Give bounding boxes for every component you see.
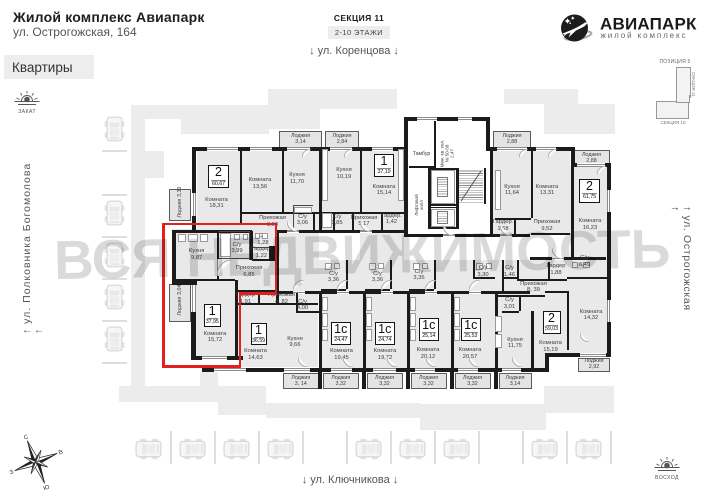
svg-text:С: С bbox=[23, 434, 30, 441]
svg-text:Ю: Ю bbox=[43, 485, 51, 490]
svg-text:ВОСХОД: ВОСХОД bbox=[655, 475, 679, 481]
svg-text:жилой комплекс: жилой комплекс bbox=[601, 31, 688, 40]
svg-text:З: З bbox=[9, 469, 15, 476]
svg-text:ЗАКАТ: ЗАКАТ bbox=[18, 109, 36, 115]
svg-text:В: В bbox=[58, 449, 64, 456]
